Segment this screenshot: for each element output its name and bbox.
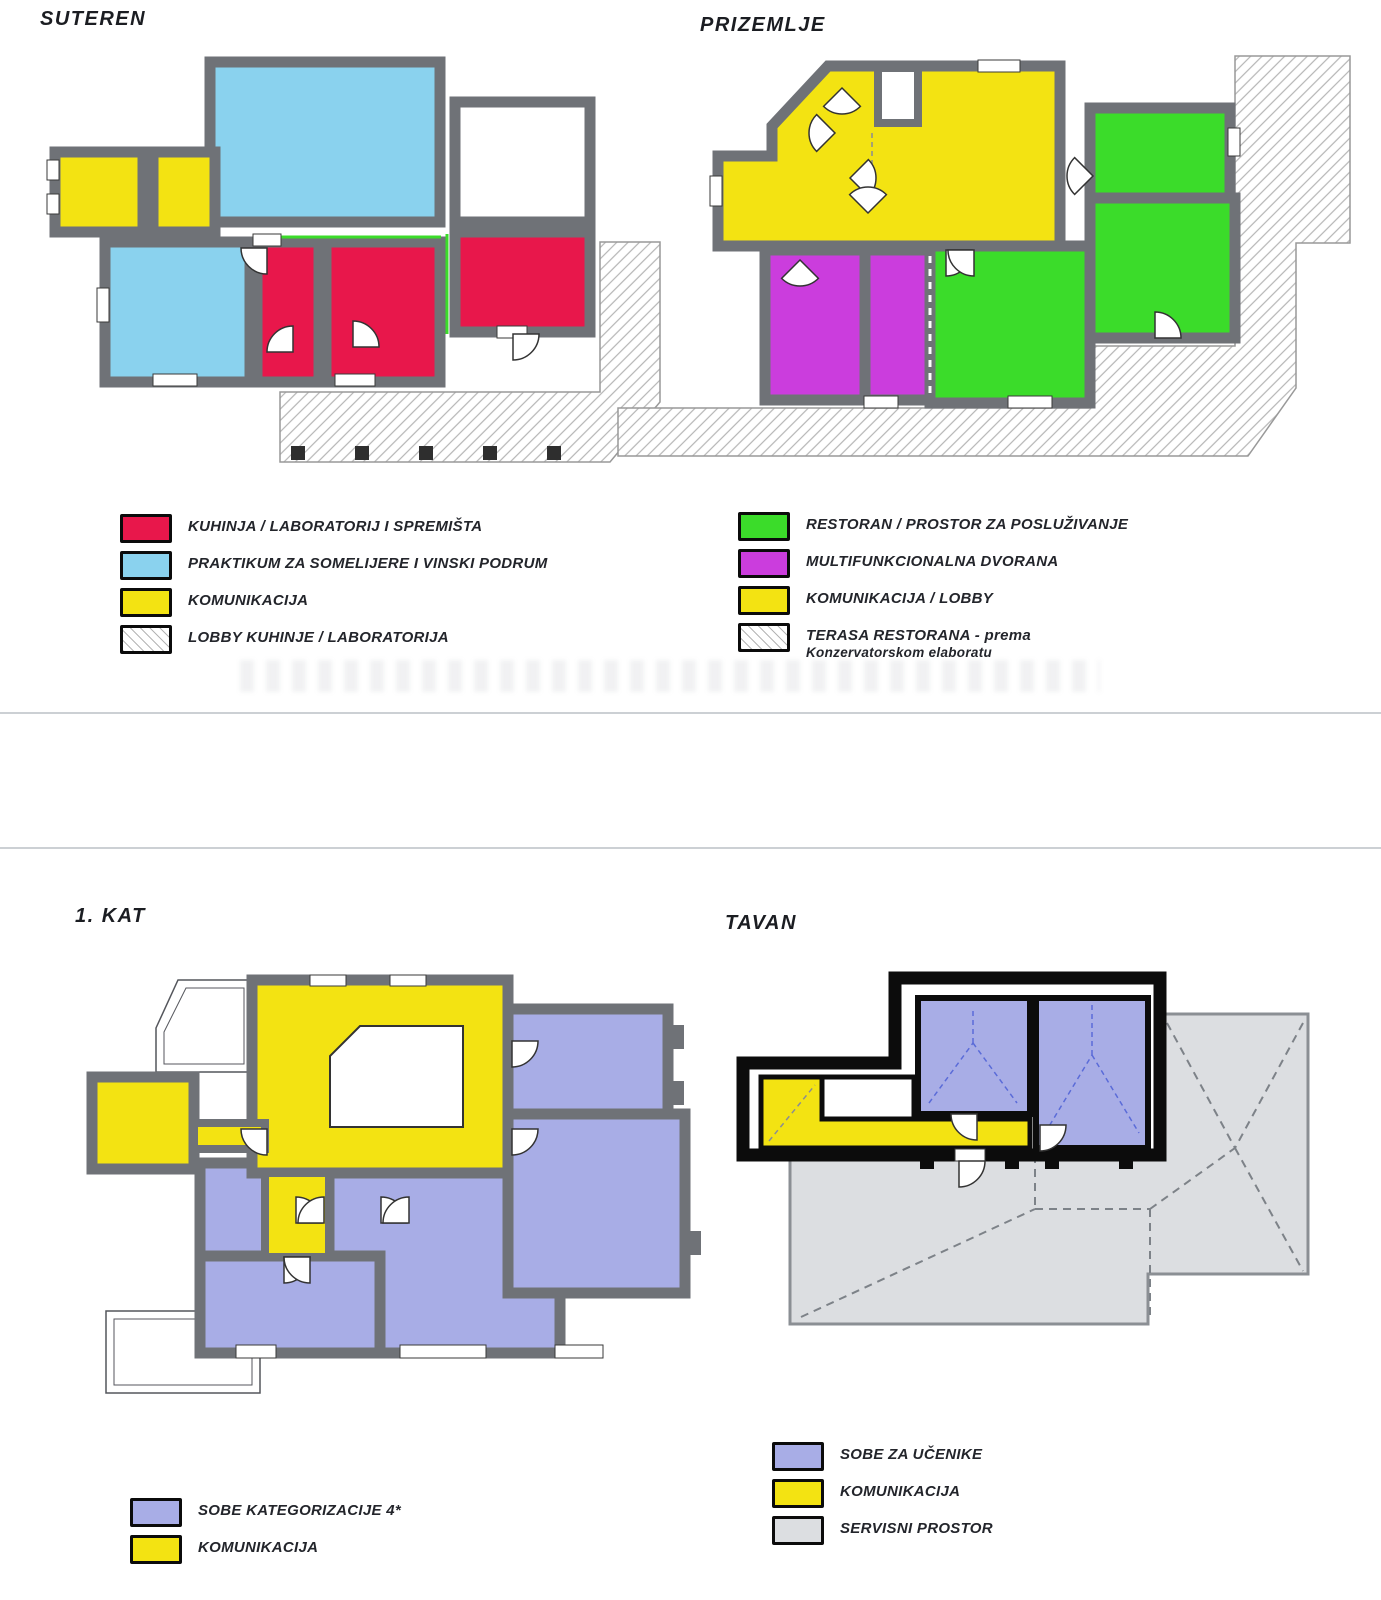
legend-label: KOMUNIKACIJA [198, 1535, 318, 1556]
kat1-floor-plan [60, 933, 705, 1433]
legend-label: TERASA RESTORANA - prema Konzervatorskom… [806, 623, 1031, 660]
legend-swatch-yellow [120, 588, 172, 617]
tavan-legend: SOBE ZA UČENIKE KOMUNIKACIJA SERVISNI PR… [772, 1442, 993, 1545]
prizemlje-lobby-niche [878, 68, 918, 123]
floor-title-tavan: TAVAN [725, 912, 797, 935]
page-bleed-smudge [240, 660, 1100, 692]
legend-label: SOBE KATEGORIZACIJE 4* [198, 1498, 401, 1519]
floor-title-suteren: SUTEREN [40, 8, 146, 31]
legend-label-line1: TERASA RESTORANA - prema [806, 627, 1031, 644]
tavan-floor-plan [715, 943, 1315, 1333]
kat1-room-soba-right-top [508, 1009, 668, 1114]
drawing-sheet: SUTEREN [0, 0, 1381, 1600]
floor-title-kat1: 1. KAT [75, 905, 146, 928]
legend-swatch-yellow [130, 1535, 182, 1564]
suteren-legend: KUHINJA / LABORATORIJ I SPREMIŠTA PRAKTI… [120, 514, 548, 654]
page-divider [0, 847, 1381, 849]
legend-item: SOBE KATEGORIZACIJE 4* [130, 1498, 401, 1527]
legend-swatch-green [738, 512, 790, 541]
prizemlje-room-restoran-1 [1090, 108, 1230, 198]
legend-label: KOMUNIKACIJA [840, 1479, 960, 1500]
prizemlje-room-dvorana-2 [865, 250, 930, 400]
legend-swatch-red [120, 514, 172, 543]
legend-label: MULTIFUNKCIONALNA DVORANA [806, 549, 1058, 570]
kat1-room-komunikacija-left [92, 1077, 194, 1169]
legend-item: MULTIFUNKCIONALNA DVORANA [738, 549, 1128, 578]
legend-item: KOMUNIKACIJA / LOBBY [738, 586, 1128, 615]
legend-swatch-periwinkle [772, 1442, 824, 1471]
legend-item: SOBE ZA UČENIKE [772, 1442, 993, 1471]
suteren-room-praktikum-large [210, 62, 440, 222]
legend-label-line2: Konzervatorskom elaboratu [806, 645, 1031, 660]
prizemlje-room-dvorana-1 [765, 250, 865, 400]
legend-swatch-roofgray [772, 1516, 824, 1545]
legend-swatch-yellow [772, 1479, 824, 1508]
prizemlje-legend: RESTORAN / PROSTOR ZA POSLUŽIVANJE MULTI… [738, 512, 1128, 660]
legend-label: KOMUNIKACIJA [188, 588, 308, 609]
legend-swatch-hatched [738, 623, 790, 652]
legend-label: SERVISNI PROSTOR [840, 1516, 993, 1537]
legend-swatch-yellow [738, 586, 790, 615]
page-divider [0, 712, 1381, 714]
suteren-room-komunikacija-1 [55, 152, 143, 232]
legend-item: SERVISNI PROSTOR [772, 1516, 993, 1545]
suteren-room-praktikum-small [105, 242, 250, 382]
legend-label: KOMUNIKACIJA / LOBBY [806, 586, 993, 607]
suteren-room-komunikacija-2 [153, 152, 215, 232]
legend-item: LOBBY KUHINJE / LABORATORIJA [120, 625, 548, 654]
legend-label: LOBBY KUHINJE / LABORATORIJA [188, 625, 449, 646]
kat1-courtyard-void [330, 1026, 463, 1127]
legend-swatch-skyblue [120, 551, 172, 580]
legend-label: RESTORAN / PROSTOR ZA POSLUŽIVANJE [806, 512, 1128, 533]
legend-label: PRAKTIKUM ZA SOMELIJERE I VINSKI PODRUM [188, 551, 548, 572]
suteren-floor-plan [35, 42, 670, 472]
legend-item: KOMUNIKACIJA [772, 1479, 993, 1508]
legend-item: KOMUNIKACIJA [120, 588, 548, 617]
legend-item: TERASA RESTORANA - prema Konzervatorskom… [738, 623, 1128, 660]
prizemlje-floor-plan [610, 28, 1350, 473]
tavan-room-white [822, 1077, 914, 1119]
legend-swatch-periwinkle [130, 1498, 182, 1527]
suteren-room-lobby [455, 102, 590, 222]
legend-label: SOBE ZA UČENIKE [840, 1442, 982, 1463]
legend-item: RESTORAN / PROSTOR ZA POSLUŽIVANJE [738, 512, 1128, 541]
legend-item: PRAKTIKUM ZA SOMELIJERE I VINSKI PODRUM [120, 551, 548, 580]
legend-swatch-magenta [738, 549, 790, 578]
legend-item: KUHINJA / LABORATORIJ I SPREMIŠTA [120, 514, 548, 543]
suteren-room-kuhinja-2 [326, 242, 440, 382]
kat1-legend: SOBE KATEGORIZACIJE 4* KOMUNIKACIJA [130, 1498, 401, 1564]
legend-swatch-hatched [120, 625, 172, 654]
legend-item: KOMUNIKACIJA [130, 1535, 401, 1564]
suteren-room-spremista [455, 232, 590, 332]
legend-label: KUHINJA / LABORATORIJ I SPREMIŠTA [188, 514, 482, 535]
